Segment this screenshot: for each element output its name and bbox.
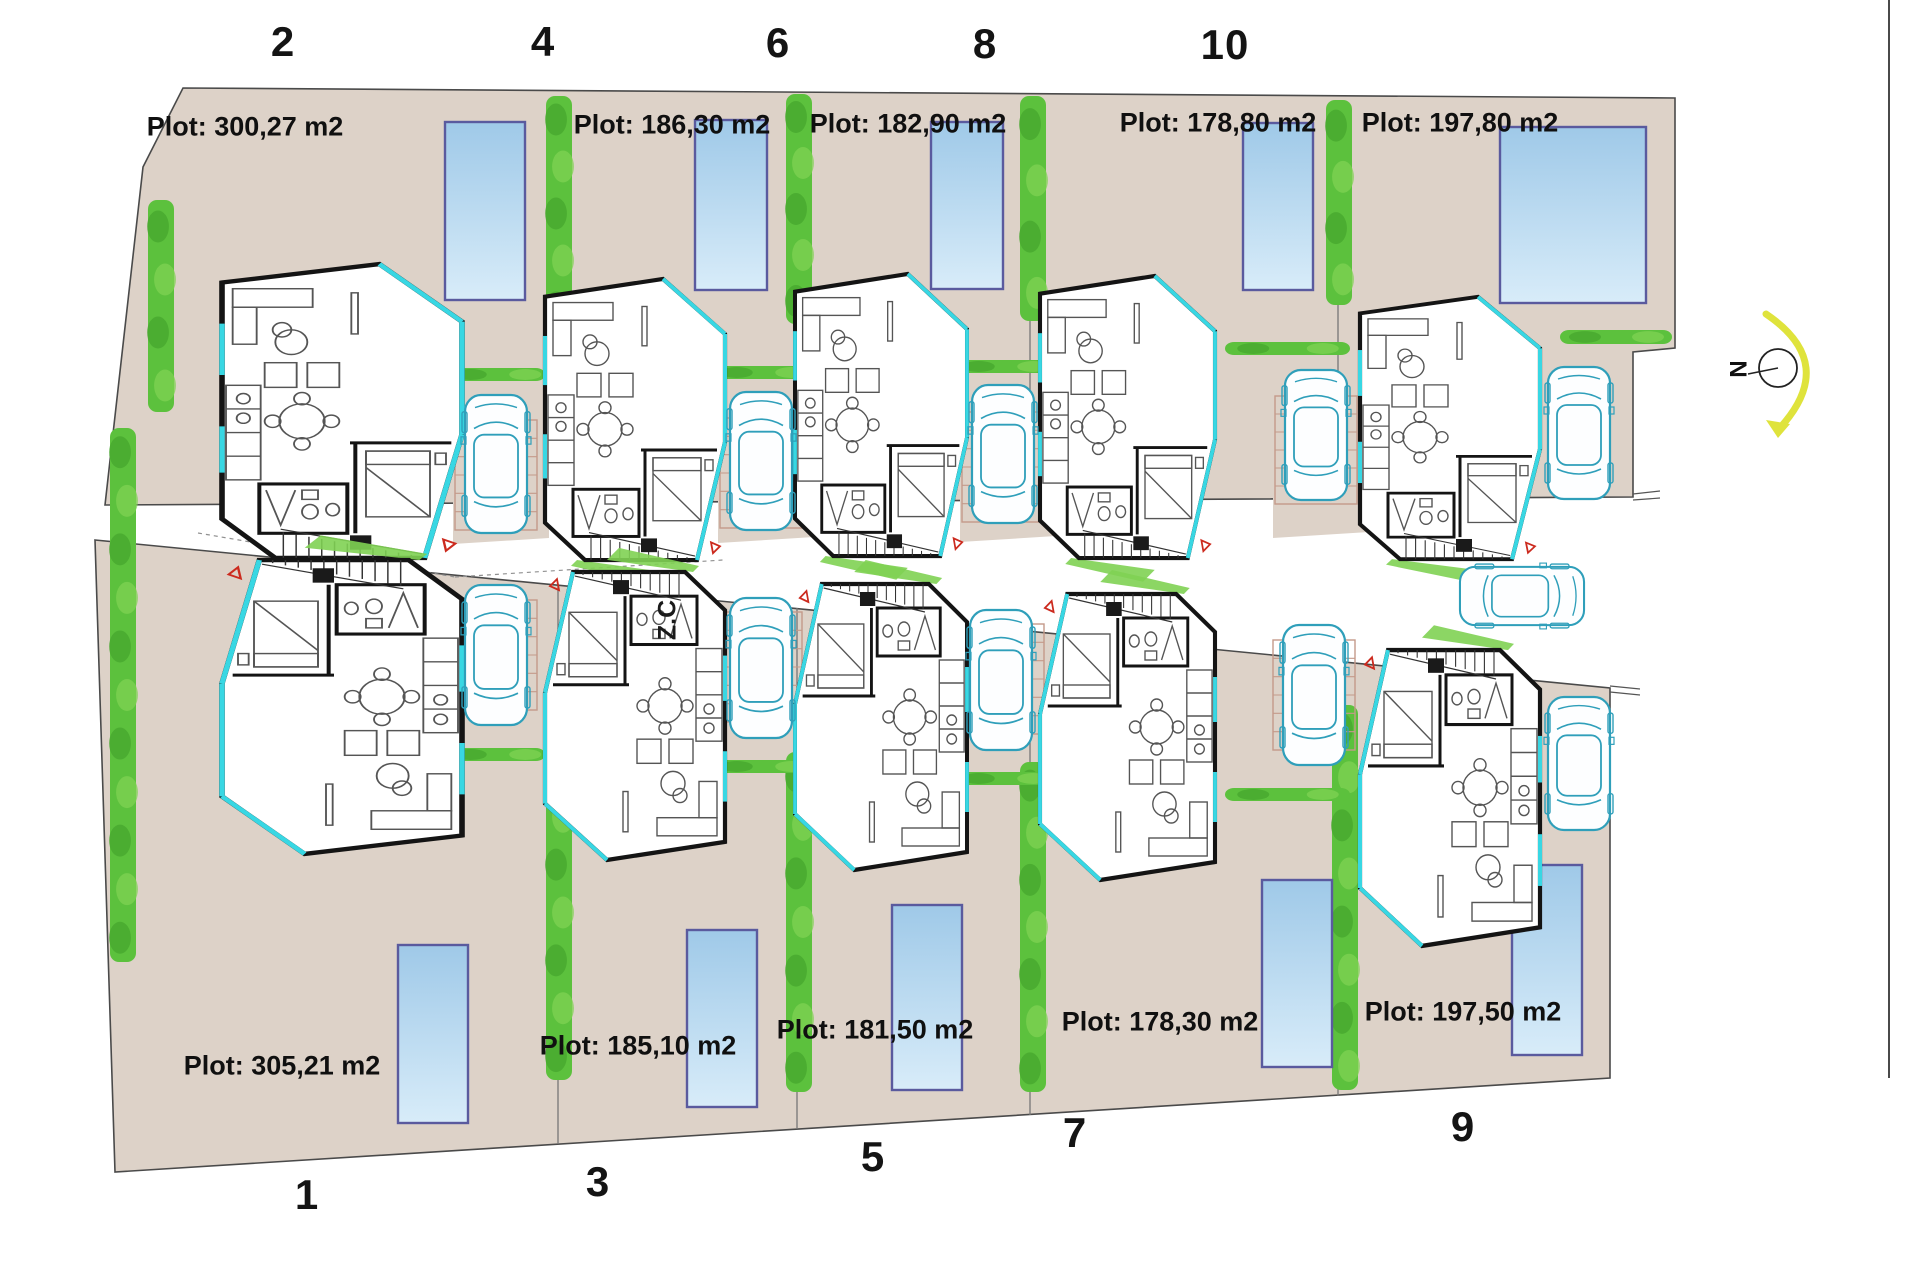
- house-floorplan: [1040, 570, 1215, 880]
- plot-area-label-8: Plot: 178,80 m2: [1120, 108, 1317, 139]
- house-floorplan: [545, 548, 725, 860]
- car-icon: [1281, 370, 1351, 500]
- car-icon: [966, 610, 1036, 750]
- plot-area-label-3: Plot: 185,10 m2: [540, 1031, 737, 1062]
- north-label: N: [1723, 360, 1751, 377]
- plot-area-label-2: Plot: 300,27 m2: [147, 112, 344, 143]
- car-icon: [1279, 625, 1349, 765]
- plot-area-label-9: Plot: 197,50 m2: [1365, 997, 1562, 1028]
- swimming-pool: [398, 945, 468, 1123]
- entrance-marker: [1526, 543, 1535, 553]
- car-icon: [1544, 697, 1614, 830]
- street-opening-line: [1610, 686, 1640, 689]
- plot-number-8: 8: [973, 20, 997, 68]
- street-name-label: Z.C: [654, 600, 683, 640]
- plot-area-label-10: Plot: 197,80 m2: [1362, 108, 1559, 139]
- entrance-marker: [711, 542, 720, 553]
- plot-number-1: 1: [295, 1171, 319, 1219]
- plot-number-2: 2: [271, 18, 295, 66]
- car-icon: [461, 585, 531, 725]
- hedge: [1325, 100, 1354, 305]
- house-floorplan: [795, 274, 967, 580]
- swimming-pool: [1243, 123, 1313, 290]
- hedge: [109, 428, 138, 962]
- plot-number-7: 7: [1063, 1109, 1087, 1157]
- swimming-pool: [695, 120, 767, 290]
- hedge: [1560, 330, 1672, 344]
- forecourt-ground: [1273, 497, 1369, 538]
- car-icon: [1544, 367, 1614, 499]
- entrance-marker: [1201, 540, 1210, 551]
- house-floorplan: [545, 279, 725, 584]
- hedge: [147, 200, 176, 412]
- house-floorplan: [1360, 297, 1540, 581]
- street-opening-line: [1633, 491, 1660, 494]
- plot-number-5: 5: [861, 1133, 885, 1181]
- plot-area-label-4: Plot: 186,30 m2: [574, 110, 771, 141]
- house-floorplan: [795, 560, 967, 870]
- car-icon: [968, 385, 1038, 523]
- car-icon: [726, 392, 796, 530]
- entrance-marker: [800, 591, 809, 602]
- plot-area-label-1: Plot: 305,21 m2: [184, 1051, 381, 1082]
- swimming-pool: [931, 122, 1003, 289]
- swimming-pool: [1262, 880, 1332, 1067]
- swimming-pool: [1500, 127, 1646, 303]
- site-plan-drawing: [0, 0, 1920, 1280]
- plot-number-9: 9: [1451, 1103, 1475, 1151]
- hedge: [1225, 342, 1350, 355]
- car-icon: [461, 395, 531, 533]
- entrance-marker: [1045, 601, 1054, 612]
- street-opening-line: [1633, 498, 1660, 500]
- hedge: [1019, 96, 1048, 321]
- plot-number-3: 3: [586, 1158, 610, 1206]
- hedge: [1225, 788, 1350, 801]
- swimming-pool: [445, 122, 525, 300]
- north-compass: [1748, 314, 1806, 438]
- plot-area-label-6: Plot: 182,90 m2: [810, 109, 1007, 140]
- house-floorplan: [1360, 625, 1540, 946]
- plot-number-4: 4: [531, 18, 555, 66]
- plot-area-label-7: Plot: 178,30 m2: [1062, 1007, 1259, 1038]
- car-icon: [1460, 563, 1584, 629]
- plot-area-label-5: Plot: 181,50 m2: [777, 1015, 974, 1046]
- plot-number-6: 6: [766, 19, 790, 67]
- house-floorplan: [222, 264, 462, 583]
- site-plan-page: 2 4 6 8 10 1 3 5 7 9 Plot: 300,27 m2 Plo…: [0, 0, 1920, 1280]
- house-floorplan: [222, 535, 462, 854]
- swimming-pool: [892, 905, 962, 1090]
- street-opening-line: [1610, 692, 1640, 695]
- swimming-pool: [687, 930, 757, 1107]
- car-icon: [726, 598, 796, 738]
- plot-number-10: 10: [1201, 21, 1250, 69]
- house-floorplan: [1040, 276, 1215, 582]
